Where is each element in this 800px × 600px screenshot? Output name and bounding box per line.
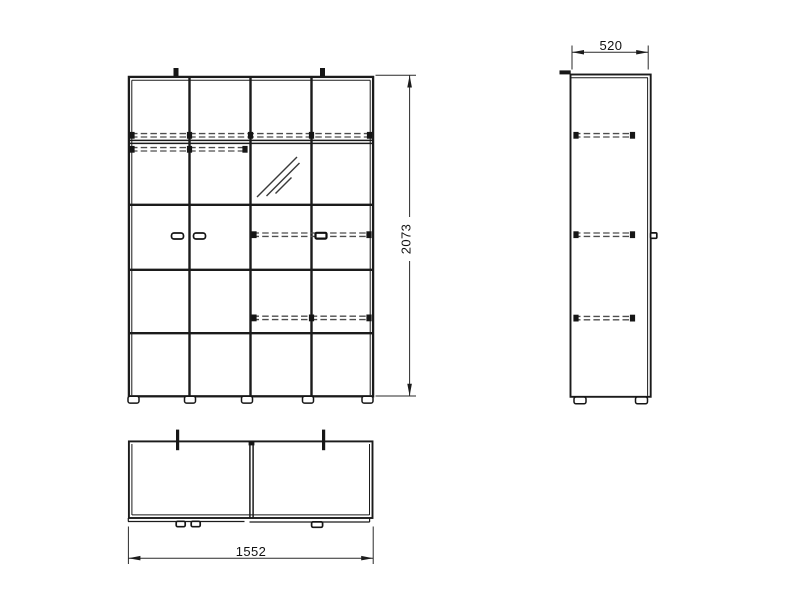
side-door-handle: [651, 233, 657, 238]
shelf-end-cap: [309, 132, 314, 139]
mirror-hatch-line-2: [267, 163, 300, 196]
depth-arrow-left: [572, 50, 584, 55]
shelf-end-cap: [248, 132, 253, 139]
height-dimension: 2073: [376, 75, 417, 396]
shelf-end-cap: [309, 315, 314, 322]
depth-dimension: 520: [572, 38, 648, 70]
shelf-end-cap: [573, 231, 578, 238]
height-arrow-up: [407, 75, 412, 87]
top-handle-tab-c: [312, 522, 323, 527]
top-hinge-tick-left: [176, 430, 179, 451]
shelf-end-cap: [367, 132, 372, 139]
side-shelves: [573, 132, 635, 322]
height-arrow-down: [407, 384, 412, 396]
shelf-end-cap: [129, 146, 134, 153]
foot: [303, 396, 314, 403]
shelf-end-cap: [187, 146, 192, 153]
foot: [242, 396, 253, 403]
foot: [185, 396, 196, 403]
foot: [574, 397, 586, 404]
top-hinge-tab-right: [320, 68, 325, 77]
door-handle-left-a: [172, 233, 184, 239]
drawing-canvas: 2073 520: [0, 0, 800, 600]
width-dimension-label: 1552: [236, 544, 267, 559]
shelf-end-cap: [630, 231, 635, 238]
top-handle-tab-b: [191, 521, 200, 526]
shelf-end-cap: [366, 231, 371, 238]
foot: [128, 396, 139, 403]
top-hinge-tab-left: [174, 68, 179, 77]
depth-arrow-right: [636, 50, 648, 55]
side-top-bracket-tab: [560, 70, 571, 74]
mirror-hatch-line-1: [257, 157, 297, 197]
shelf-end-cap: [242, 146, 247, 153]
top-handle-tab-a: [176, 521, 185, 526]
technical-drawing: 2073 520: [0, 0, 800, 600]
shelf-end-cap: [129, 132, 134, 139]
shelf-end-cap: [251, 315, 256, 322]
depth-dimension-label: 520: [600, 38, 623, 53]
shelf-end-cap: [366, 315, 371, 322]
shelf-end-cap: [573, 315, 578, 322]
shelf-end-cap: [630, 132, 635, 139]
shelf-end-cap: [630, 315, 635, 322]
shelf-end-cap: [251, 231, 256, 238]
width-dimension: 1552: [128, 527, 373, 565]
width-arrow-right: [361, 556, 373, 561]
shelf-end-cap: [187, 132, 192, 139]
top-divider-cap: [249, 441, 255, 445]
foot: [362, 396, 373, 403]
side-carcass-outline: [571, 75, 651, 397]
front-top-tabs: [174, 68, 326, 77]
door-handle-left-b: [194, 233, 206, 239]
door-handle-right: [316, 233, 327, 239]
height-dimension-label: 2073: [399, 224, 414, 255]
width-arrow-left: [128, 556, 140, 561]
top-hinge-tick-right: [322, 430, 325, 451]
top-carcass-outline: [129, 441, 373, 518]
mirror-panel: [257, 157, 300, 197]
side-feet: [574, 397, 648, 404]
shelf-end-cap: [573, 132, 578, 139]
top-view: [128, 430, 373, 528]
foot: [636, 397, 648, 404]
